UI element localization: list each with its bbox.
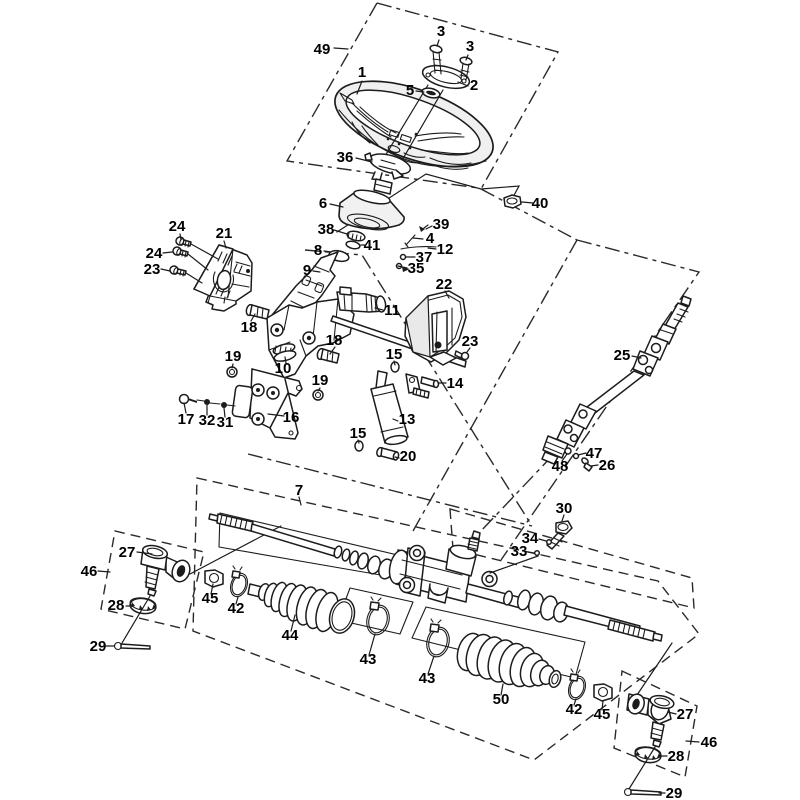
svg-text:29: 29: [666, 785, 683, 800]
svg-text:24: 24: [146, 245, 163, 262]
svg-text:1: 1: [358, 64, 366, 81]
svg-text:10: 10: [275, 360, 292, 377]
svg-text:46: 46: [701, 734, 718, 751]
svg-text:43: 43: [360, 651, 377, 668]
svg-text:43: 43: [419, 670, 436, 687]
svg-text:8: 8: [314, 242, 322, 259]
svg-text:35: 35: [408, 260, 425, 277]
svg-text:3: 3: [466, 38, 474, 55]
svg-text:40: 40: [532, 195, 549, 212]
svg-text:14: 14: [447, 375, 464, 392]
svg-text:16: 16: [283, 409, 300, 426]
svg-text:4: 4: [426, 230, 435, 247]
svg-text:19: 19: [225, 348, 242, 365]
svg-text:18: 18: [241, 319, 258, 336]
svg-text:11: 11: [384, 302, 400, 319]
svg-text:27: 27: [677, 706, 694, 723]
svg-text:49: 49: [314, 41, 331, 58]
svg-text:6: 6: [319, 195, 327, 212]
svg-text:24: 24: [169, 218, 186, 235]
svg-text:13: 13: [399, 411, 416, 428]
svg-text:22: 22: [436, 276, 453, 293]
svg-text:29: 29: [90, 638, 107, 655]
svg-text:38: 38: [318, 221, 335, 238]
svg-text:18: 18: [326, 332, 343, 349]
svg-text:46: 46: [81, 563, 98, 580]
svg-text:26: 26: [599, 457, 616, 474]
svg-text:27: 27: [119, 544, 136, 561]
svg-text:12: 12: [437, 241, 454, 258]
svg-text:44: 44: [282, 627, 299, 644]
svg-text:28: 28: [108, 597, 125, 614]
svg-text:20: 20: [400, 448, 417, 465]
svg-text:33: 33: [511, 543, 528, 560]
svg-text:19: 19: [312, 372, 329, 389]
svg-text:2: 2: [470, 77, 478, 94]
svg-text:36: 36: [337, 149, 354, 166]
svg-text:23: 23: [144, 261, 161, 278]
svg-text:28: 28: [668, 748, 685, 765]
svg-text:9: 9: [303, 262, 311, 279]
svg-text:3: 3: [437, 23, 445, 40]
svg-text:45: 45: [202, 590, 219, 607]
svg-text:39: 39: [433, 216, 450, 233]
svg-text:25: 25: [614, 347, 631, 364]
svg-text:48: 48: [552, 458, 569, 475]
svg-text:41: 41: [364, 237, 381, 254]
svg-text:5: 5: [406, 82, 414, 99]
svg-text:21: 21: [216, 225, 233, 242]
